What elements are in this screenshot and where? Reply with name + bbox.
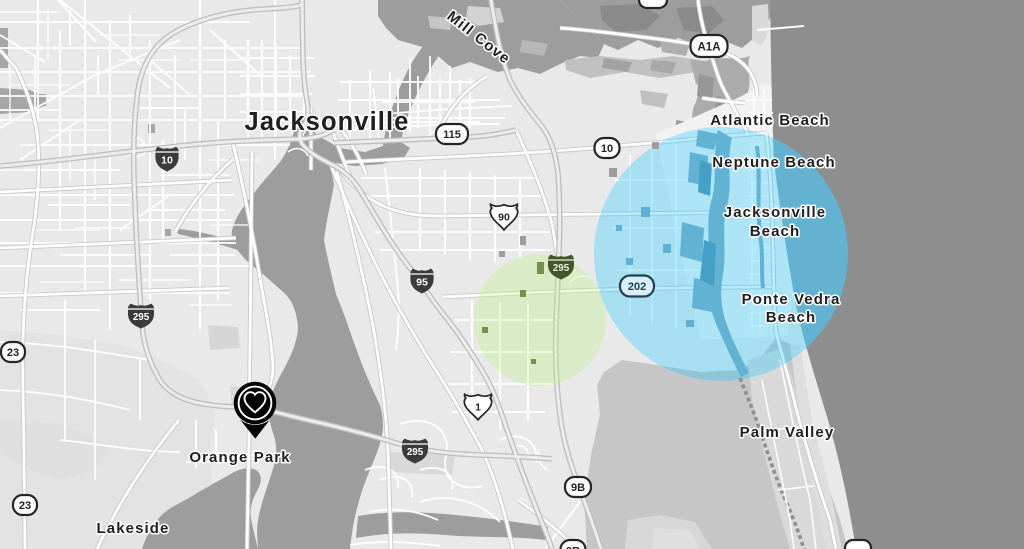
svg-text:1: 1 (475, 402, 481, 414)
svg-text:9B: 9B (566, 546, 580, 549)
svg-text:10: 10 (161, 154, 173, 166)
svg-text:295: 295 (407, 447, 424, 458)
svg-text:Neptune Beach: Neptune Beach (712, 154, 836, 171)
svg-text:Palm Valley: Palm Valley (740, 424, 835, 441)
svg-text:Atlantic Beach: Atlantic Beach (710, 112, 830, 129)
svg-text:90: 90 (498, 212, 510, 224)
svg-text:115: 115 (443, 129, 461, 141)
svg-text:9B: 9B (571, 482, 585, 494)
svg-text:23: 23 (7, 347, 19, 359)
svg-text:10: 10 (601, 143, 613, 155)
svg-text:95: 95 (416, 276, 428, 288)
svg-text:Jacksonville: Jacksonville (245, 108, 410, 136)
svg-text:202: 202 (628, 281, 646, 293)
svg-text:Orange Park: Orange Park (189, 449, 290, 466)
svg-text:Lakeside: Lakeside (96, 520, 169, 537)
svg-text:295: 295 (553, 263, 570, 274)
svg-text:A1A: A1A (697, 41, 720, 53)
svg-text:295: 295 (133, 312, 150, 323)
svg-text:23: 23 (19, 500, 31, 512)
